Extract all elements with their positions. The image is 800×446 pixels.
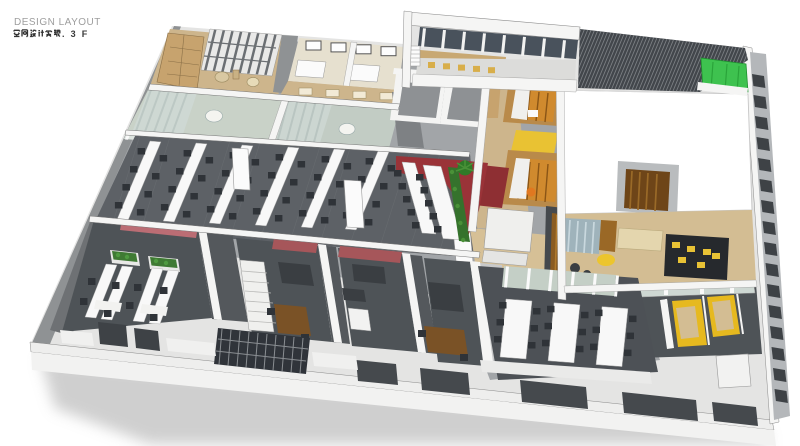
svg-text:. 3 F: . 3 F [62, 29, 89, 39]
svg-text:DESIGN LAYOUT: DESIGN LAYOUT [14, 17, 101, 28]
